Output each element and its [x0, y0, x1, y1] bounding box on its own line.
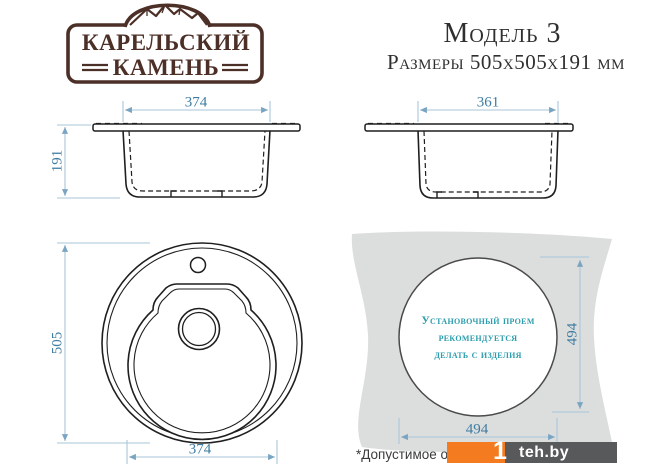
- brand-name-line1: КАРЕЛЬСКИЙ: [64, 30, 268, 56]
- cutout-note-line2: рекомендуется: [396, 330, 560, 347]
- dim-side-left-height: 191: [50, 150, 67, 173]
- cutout-note: Установочный проем рекомендуется делать …: [396, 313, 560, 364]
- top-view: [57, 243, 302, 464]
- dim-cutout-width: 494: [466, 422, 489, 439]
- sink-rim-section: [93, 124, 300, 131]
- model-dimensions: Размеры 505x505x191 мм: [372, 50, 640, 75]
- watermark-site-label: teh.by: [519, 444, 569, 462]
- dim-top-view-diameter: 505: [50, 332, 67, 355]
- model-title: Модель 3: [375, 18, 630, 50]
- drain-outer-ring: [179, 309, 220, 350]
- sink-rim-section: [365, 124, 573, 131]
- side-view-left: [57, 101, 300, 198]
- product-spec-sheet: КАРЕЛЬСКИЙ КАМЕНЬ Модель 3 Размеры 505x5…: [0, 0, 670, 471]
- dim-top-view-bowl-width: 374: [189, 442, 212, 459]
- watermark-one-glyph: 1: [493, 439, 507, 464]
- dim-side-right-width: 361: [477, 95, 500, 112]
- cutout-note-line3: делать с изделия: [396, 347, 560, 364]
- sink-bowl-section: [123, 130, 270, 197]
- side-view-right: [365, 101, 573, 198]
- mountains-icon: [130, 5, 207, 25]
- sink-bowl-section: [418, 130, 558, 198]
- faucet-hole: [191, 258, 206, 273]
- dim-side-left-width: 374: [185, 95, 208, 112]
- dim-cutout-height: 494: [565, 323, 582, 346]
- footnote-text: *Допустимое от: [356, 447, 454, 462]
- cutout-note-line1: Установочный проем: [396, 313, 560, 330]
- watermark-logo: teh.by 1: [447, 442, 617, 463]
- brand-name-line2: КАМЕНЬ: [64, 55, 268, 81]
- watermark-dark-block: teh.by: [505, 442, 617, 463]
